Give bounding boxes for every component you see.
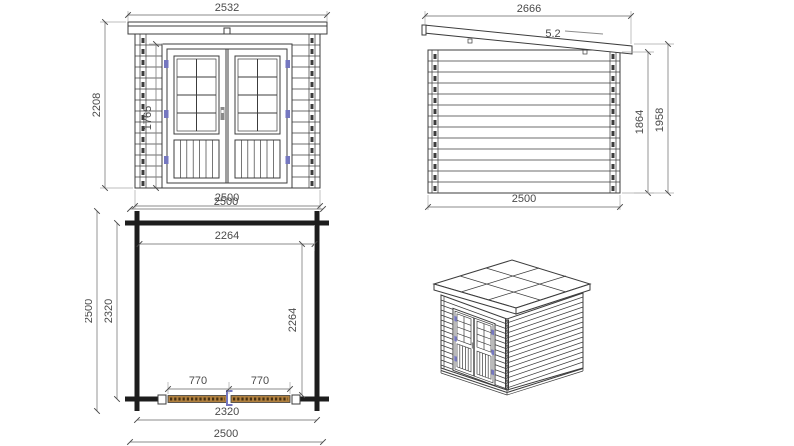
front-top-dimension: 2532 bbox=[128, 2, 327, 21]
front-elevation-view: 2532 bbox=[88, 0, 343, 214]
plan-left-outer-dimension: 2500 bbox=[85, 211, 97, 411]
plan-right-inner-dimension: 2264 bbox=[287, 225, 315, 395]
technical-drawing-canvas: 2532 bbox=[0, 0, 794, 446]
front-left-dimension: 2208 bbox=[91, 22, 133, 188]
dim-plan-bottom-inner: 2320 bbox=[215, 406, 239, 418]
dim-side-wall-height: 1864 bbox=[634, 110, 646, 134]
dim-plan-top-inner: 2264 bbox=[215, 230, 239, 242]
front-door-handle bbox=[221, 107, 225, 120]
plan-top-inner-dimension: 2264 bbox=[140, 230, 315, 244]
dim-front-door-height: 1765 bbox=[142, 106, 154, 130]
front-double-door bbox=[162, 44, 292, 188]
floor-plan-view: 2500 2264 2500 2320 bbox=[85, 196, 385, 446]
dim-side-top-width: 2666 bbox=[517, 3, 541, 15]
dim-side-bottom-width: 2500 bbox=[512, 193, 536, 205]
side-roof-pitch-annotation: 5.2 bbox=[545, 28, 603, 40]
dim-plan-left-inner: 2320 bbox=[103, 299, 115, 323]
dim-plan-right-inner: 2264 bbox=[287, 308, 299, 332]
plan-door-leaf-right bbox=[231, 396, 290, 403]
front-door-height-dimension: 1765 bbox=[142, 44, 163, 188]
plan-door-leaf-left bbox=[168, 396, 227, 403]
side-corner-strip-right bbox=[610, 50, 616, 193]
dim-plan-door-right: 770 bbox=[251, 375, 269, 387]
plan-left-inner-dimension: 2320 bbox=[103, 223, 117, 399]
front-roof-fascia bbox=[128, 22, 327, 34]
side-wall bbox=[428, 50, 620, 193]
side-corner-strip-left bbox=[432, 50, 438, 193]
dim-side-total-height: 1958 bbox=[654, 108, 666, 132]
dim-side-roof-pitch: 5.2 bbox=[545, 28, 560, 40]
dim-plan-bottom-outer: 2500 bbox=[214, 428, 238, 440]
dim-plan-top-outer: 2500 bbox=[214, 196, 238, 208]
side-elevation-view: 2666 bbox=[398, 0, 698, 222]
dim-plan-door-left: 770 bbox=[189, 375, 207, 387]
plan-door-dimensions: 770 770 bbox=[168, 375, 290, 394]
plan-bottom-outer-dimension: 2500 bbox=[130, 428, 323, 442]
side-wall-height-dimension: 1864 bbox=[622, 52, 654, 193]
dim-front-top-width: 2532 bbox=[215, 2, 239, 14]
plan-top-outer-dimension: 2500 bbox=[130, 196, 323, 209]
dim-front-left-height: 2208 bbox=[91, 93, 103, 117]
side-bottom-dimension: 2500 bbox=[428, 193, 620, 210]
isometric-view bbox=[418, 238, 643, 443]
plan-bottom-inner-dimension: 2320 bbox=[137, 406, 317, 420]
side-wall-logs bbox=[428, 61, 620, 182]
front-wall-logs-right bbox=[292, 45, 320, 177]
dim-plan-left-outer: 2500 bbox=[85, 299, 95, 323]
iso-door-handle bbox=[472, 342, 474, 349]
